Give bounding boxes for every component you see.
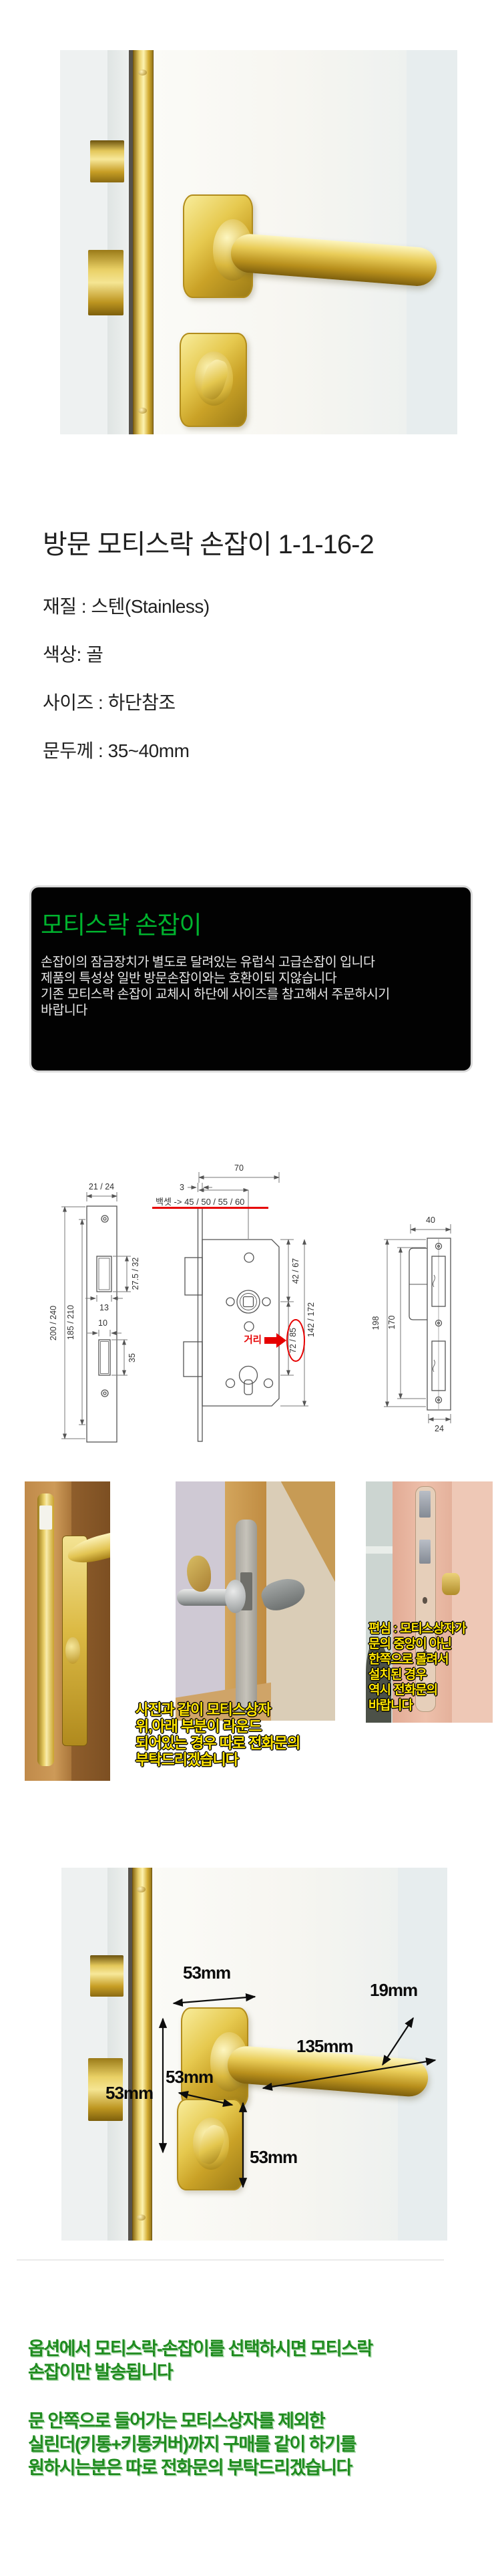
stainless-edge-plate	[236, 1520, 257, 1716]
info-line: 손잡이의 잠금장치가 별도로 달려있는 유럽식 고급손잡이 입니다	[41, 954, 390, 970]
dim-face-thickness: 3	[180, 1183, 184, 1192]
note-line: 실린더(키통+키통커버)까지 구매를 같이 하기를	[28, 2433, 356, 2456]
dim-latch-width: 13	[99, 1303, 109, 1312]
dimension-label: 53mm	[166, 2067, 213, 2088]
spec-size: 사이즈 : 하단참조	[43, 688, 176, 715]
door-frame-strip	[107, 50, 129, 434]
section-divider	[17, 2259, 444, 2261]
dim-side-hole-span: 170	[387, 1316, 397, 1330]
spec-color: 색상: 골	[43, 640, 103, 667]
info-box: 모티스락 손잡이 손잡이의 잠금장치가 별도로 달려있는 유럽식 고급손잡이 입…	[29, 885, 473, 1072]
spec-door-thickness: 문두께 : 35~40mm	[43, 736, 189, 763]
caption-line: 사진과 같이 모티스상자	[136, 1701, 300, 1718]
info-line: 기존 모티스락 손잡이 교체시 하단에 사이즈를 참고해서 주문하시기	[41, 986, 390, 1002]
caption-line: 역시 전화문의	[368, 1683, 466, 1698]
spec-material: 재질 : 스텐(Stainless)	[43, 592, 210, 619]
red-arrow-icon	[264, 1333, 286, 1348]
dimension-arrows	[61, 1868, 447, 2241]
note-line: 원하시는분은 따로 전화문의 부탁드리겠습니다	[28, 2456, 356, 2480]
info-box-text: 손잡이의 잠금장치가 별도로 달려있는 유럽식 고급손잡이 입니다 제품의 특성…	[41, 954, 390, 1018]
page-title: 방문 모티스락 손잡이 1-1-16-2	[43, 523, 374, 561]
dim-bolt-width: 10	[98, 1318, 107, 1328]
info-box-heading: 모티스락 손잡이	[41, 905, 202, 941]
dimension-label: 53mm	[183, 1963, 230, 1983]
spindle-collar	[225, 1580, 246, 1613]
caption-line: 되어있는 경우 따로 전화문의	[136, 1735, 300, 1751]
note-line: 옵션에서 모티스락-손잡이를 선택하시면 모티스락	[28, 2337, 373, 2361]
caption-round-note: 사진과 같이 모티스상자 위,아래 부분이 라운드 되어있는 경우 따로 전화문…	[136, 1701, 300, 1768]
dead-bolt	[88, 250, 124, 315]
dimension-label: 135mm	[296, 2036, 353, 2057]
caption-line: 설치된 경우	[368, 1667, 466, 1683]
info-line: 제품의 특성상 일반 방문손잡이와는 호환이되 지않습니다	[41, 970, 390, 986]
dimension-label: 53mm	[105, 2083, 153, 2104]
lock-body-drawing	[184, 1208, 279, 1441]
dimension-diagram: 21 / 24 200 / 240 185 / 210 27.5 / 32 13…	[0, 1163, 496, 1443]
dim-plate-width: 21 / 24	[89, 1182, 114, 1191]
dim-inner-height: 185 / 210	[66, 1305, 75, 1340]
install-photo-wood-door	[13, 1481, 110, 1781]
screw-icon	[138, 69, 147, 76]
product-photo-main	[60, 50, 457, 434]
photo-backdrop	[406, 50, 457, 434]
dim-side-depth: 24	[435, 1424, 444, 1433]
dim-body-height: 142 / 172	[306, 1302, 316, 1337]
screw-icon	[138, 408, 147, 414]
note-line: 문 안쪽으로 들어가는 모티스상자를 제외한	[28, 2410, 356, 2433]
dim-hub-to-cylinder: 72 / 85	[288, 1328, 298, 1353]
backset-underline	[152, 1207, 268, 1209]
dimension-label: 53mm	[250, 2147, 297, 2168]
dimension-label: 19mm	[370, 1980, 417, 2001]
dim-side-width: 40	[426, 1215, 435, 1225]
backset-label: 백셋 -> 45 / 50 / 55 / 60	[156, 1197, 244, 1207]
dim-total-height: 200 / 240	[49, 1306, 58, 1340]
bolt-slot	[419, 1491, 431, 1518]
brass-edge-plate	[37, 1493, 54, 1766]
bolt-slot	[419, 1540, 431, 1564]
latch-bolt	[90, 140, 124, 182]
sticker	[39, 1506, 52, 1530]
caption-line: 위,아래 부분이 라운드	[136, 1718, 300, 1735]
info-line: 바랍니다	[41, 1002, 390, 1018]
euro-cylinder	[65, 1637, 80, 1664]
caption-line: 한쪽으로 몰려서	[368, 1652, 466, 1667]
dim-side-height: 198	[371, 1316, 381, 1330]
product-photo-dimensions: 53mm 19mm 135mm 53mm 53mm 53mm	[61, 1868, 447, 2241]
install-photo-round-mortise	[176, 1481, 335, 1721]
dim-top-to-hub: 42 / 67	[291, 1258, 300, 1284]
caption-line: 편심 : 모티스상자가	[368, 1621, 466, 1636]
option-note: 옵션에서 모티스락-손잡이를 선택하시면 모티스락 손잡이만 발송됩니다	[28, 2337, 373, 2384]
caption-line: 부탁드리겠습니다	[136, 1751, 300, 1768]
product-detail-page: 방문 모티스락 손잡이 1-1-16-2 재질 : 스텐(Stainless) …	[0, 0, 496, 2576]
cylinder-note: 문 안쪽으로 들어가는 모티스상자를 제외한 실린더(키통+키통커버)까지 구매…	[28, 2410, 356, 2480]
door-gap	[129, 50, 134, 434]
brass-strike	[442, 1573, 460, 1594]
caption-line: 문의 중앙이 아닌	[368, 1636, 466, 1652]
dim-latch-height: 27.5 / 32	[131, 1258, 140, 1290]
dim-bolt-height: 35	[128, 1353, 137, 1363]
distance-label: 거리	[244, 1334, 262, 1346]
note-line: 손잡이만 발송됩니다	[28, 2361, 373, 2384]
screw-hole	[423, 1597, 428, 1603]
mortise-edge-plate	[133, 50, 154, 434]
side-strike-plate-drawing	[409, 1238, 451, 1410]
caption-line: 바랍니다	[368, 1698, 466, 1713]
caption-offset-note: 편심 : 모티스상자가 문의 중앙이 아닌 한쪽으로 몰려서 설치된 경우 역시…	[368, 1621, 466, 1713]
dim-body-depth: 70	[234, 1163, 244, 1173]
